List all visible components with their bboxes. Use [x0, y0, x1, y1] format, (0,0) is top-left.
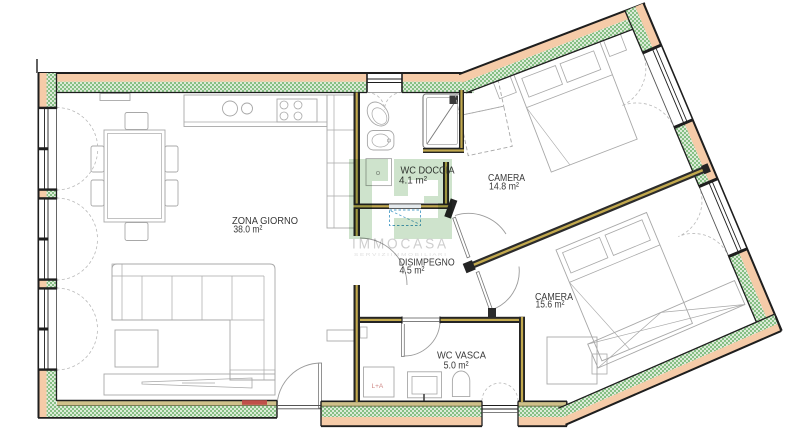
svg-text:IMMOCASA: IMMOCASA	[352, 237, 449, 253]
svg-text:S E R V I Z I I M M O B I L: S E R V I Z I I M M O B I L I A R I	[354, 252, 446, 257]
svg-text:4.5 m²: 4.5 m²	[400, 266, 426, 277]
svg-text:5.0 m²: 5.0 m²	[444, 361, 470, 372]
svg-text:14.8 m²: 14.8 m²	[489, 182, 520, 193]
svg-text:15.6 m²: 15.6 m²	[536, 300, 566, 311]
svg-text:38.0 m²: 38.0 m²	[233, 225, 263, 236]
svg-text:L+A: L+A	[372, 383, 384, 390]
